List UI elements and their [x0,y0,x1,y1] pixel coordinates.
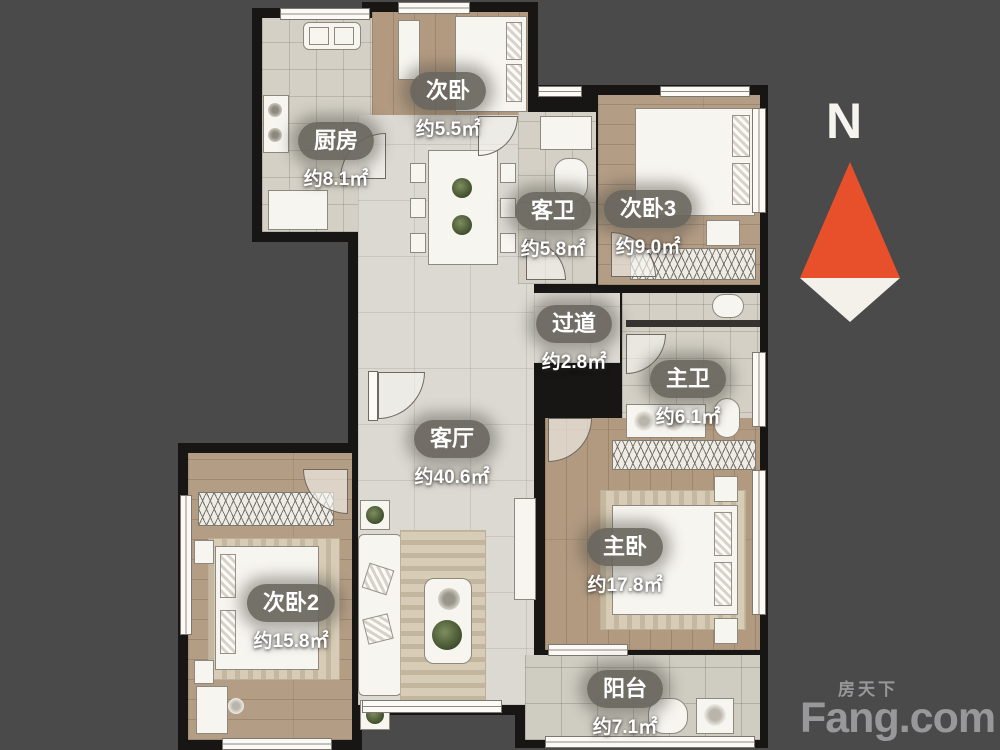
room-label-bedroom-top: 次卧 约5.5㎡ [410,72,486,141]
coffee-table-tray [438,588,460,610]
washing-machine-door [704,704,726,726]
room-name: 主卧 [587,528,663,566]
room-label-hallway: 过道 约2.8㎡ [536,305,612,374]
room-area: 约2.8㎡ [536,347,612,374]
plant [366,506,384,524]
room-label-guest-bath: 客卫 约5.8㎡ [515,192,591,261]
room-name: 厨房 [298,122,374,160]
stove-burner [268,128,282,142]
toilet [712,294,744,318]
room-name: 阳台 [587,670,663,708]
bed-pillow [732,115,750,157]
dining-chair [410,198,426,218]
window [752,470,766,615]
room-name: 客厅 [414,420,490,458]
dining-chair [500,233,516,253]
room-name: 次卧 [410,72,486,110]
room-area: 约5.8㎡ [515,234,591,261]
dining-table [428,150,498,265]
dining-chair [410,163,426,183]
kitchen-sink-basin [309,27,329,45]
compass-arrow-icon [800,162,900,278]
window [222,738,332,750]
watermark-brand-en: Fang.com [800,697,995,740]
window [752,352,766,427]
wardrobe [612,440,756,470]
window [660,86,750,97]
desk [196,686,228,734]
dining-chair [500,163,516,183]
tv-stand [514,498,536,600]
room-area: 约5.5㎡ [410,114,486,141]
room-area: 约15.8㎡ [247,626,335,653]
nightstand [194,540,214,564]
shower-partition [626,320,760,327]
bed-pillow [714,562,732,606]
bathroom-vanity [540,116,592,150]
room-area: 约17.8㎡ [587,570,663,597]
window [538,86,582,97]
nightstand [194,660,214,684]
compass-north-label: N [826,92,862,150]
window [362,700,502,713]
nightstand [706,220,740,246]
room-area: 约8.1㎡ [298,164,374,191]
room-label-bedroom2: 次卧2 约15.8㎡ [247,584,335,653]
coffee-table-plant [432,620,462,650]
room-name: 过道 [536,305,612,343]
floorplan-canvas: 次卧 约5.5㎡ 厨房 约8.1㎡ 客卫 约5.8㎡ 次卧3 约9.0㎡ 过道 … [0,0,1000,750]
nightstand [714,476,738,502]
dining-chair [410,233,426,253]
room-area: 约40.6㎡ [414,462,490,489]
room-label-master-bedroom: 主卧 约17.8㎡ [587,528,663,597]
room-name: 次卧2 [247,584,335,622]
room-area: 约7.1㎡ [587,712,663,739]
bed-pillow [506,64,522,102]
dining-chair [500,198,516,218]
table-plant [452,178,472,198]
room-label-balcony: 阳台 约7.1㎡ [587,670,663,739]
room-name: 主卫 [650,360,726,398]
desk-chair [228,698,244,714]
bed-pillow [506,22,522,60]
room-area: 约9.0㎡ [604,232,692,259]
room-area: 约6.1㎡ [650,402,726,429]
nightstand [714,618,738,644]
stove-burner [268,103,282,117]
room-label-bedroom3: 次卧3 约9.0㎡ [604,190,692,259]
room-label-master-bath: 主卫 约6.1㎡ [650,360,726,429]
nightstand [398,20,420,80]
compass-arrow-tail-icon [800,278,900,322]
entry-door-leaf [368,371,378,421]
room-name: 次卧3 [604,190,692,228]
bed-pillow [220,554,236,598]
table-plant [452,215,472,235]
window [398,2,470,14]
room-label-living-room: 客厅 约40.6㎡ [414,420,490,489]
bed-pillow [732,163,750,205]
balcony-sliding-door [548,644,628,656]
window [752,108,766,213]
room-name: 客卫 [515,192,591,230]
room-label-kitchen: 厨房 约8.1㎡ [298,122,374,191]
window [280,8,370,20]
bed-pillow [220,610,236,654]
kitchen-cabinet [268,190,328,230]
window [180,495,192,635]
bed-pillow [714,512,732,556]
kitchen-sink-basin [334,27,354,45]
